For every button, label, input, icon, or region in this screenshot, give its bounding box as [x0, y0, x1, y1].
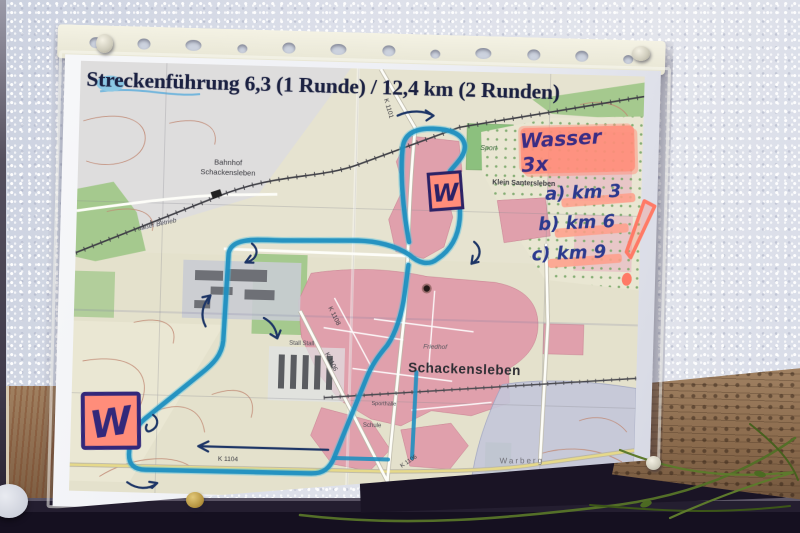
punch-hole: [137, 38, 150, 49]
label-sport: Sport: [480, 145, 498, 152]
plant-vines: [290, 410, 800, 533]
punch-hole: [237, 44, 247, 53]
water-station-marker-north: W: [428, 172, 463, 210]
punch-hole: [527, 49, 540, 60]
water-station-marker-southwest: W: [83, 394, 139, 448]
water-marker-w: W: [87, 398, 137, 448]
water-point-a: a) km 3: [545, 181, 622, 214]
punch-hole: [475, 47, 491, 58]
push-pin-top-left: [96, 34, 113, 53]
punch-hole: [282, 42, 295, 53]
label-k1104: K 1104: [218, 456, 239, 464]
label-bahnhof-town: Schackensleben: [200, 167, 255, 178]
punch-hole: [331, 43, 347, 54]
label-schackensleben: Schackensleben: [408, 360, 521, 378]
water-marker-w: W: [431, 178, 461, 208]
push-pin-bottom-right: [646, 456, 661, 470]
punch-hole: [382, 45, 395, 56]
label-friedhof: Friedhof: [423, 343, 448, 351]
label-sporthalle: Sporthalle: [371, 401, 396, 408]
water-note-text: Wasser 3x: [519, 122, 636, 177]
push-pin-bottom-left: [186, 492, 204, 508]
punch-hole: [575, 50, 588, 61]
water-note-highlight: Wasser 3x: [520, 125, 635, 174]
water-point-b: b) km 6: [538, 211, 623, 244]
punch-hole: [186, 39, 202, 50]
water-point-list: a) km 3 b) km 6 c) km 9: [529, 181, 625, 275]
push-pin-top-right: [632, 46, 650, 61]
label-bahnhof: Bahnhof: [214, 158, 243, 168]
punch-hole: [430, 49, 440, 58]
photo-of-course-map-poster: Streckenführung 6,3 (1 Runde) / 12,4 km …: [0, 0, 800, 533]
water-point-c: c) km 9: [531, 241, 624, 275]
label-stall: Stall Stall: [289, 341, 314, 348]
